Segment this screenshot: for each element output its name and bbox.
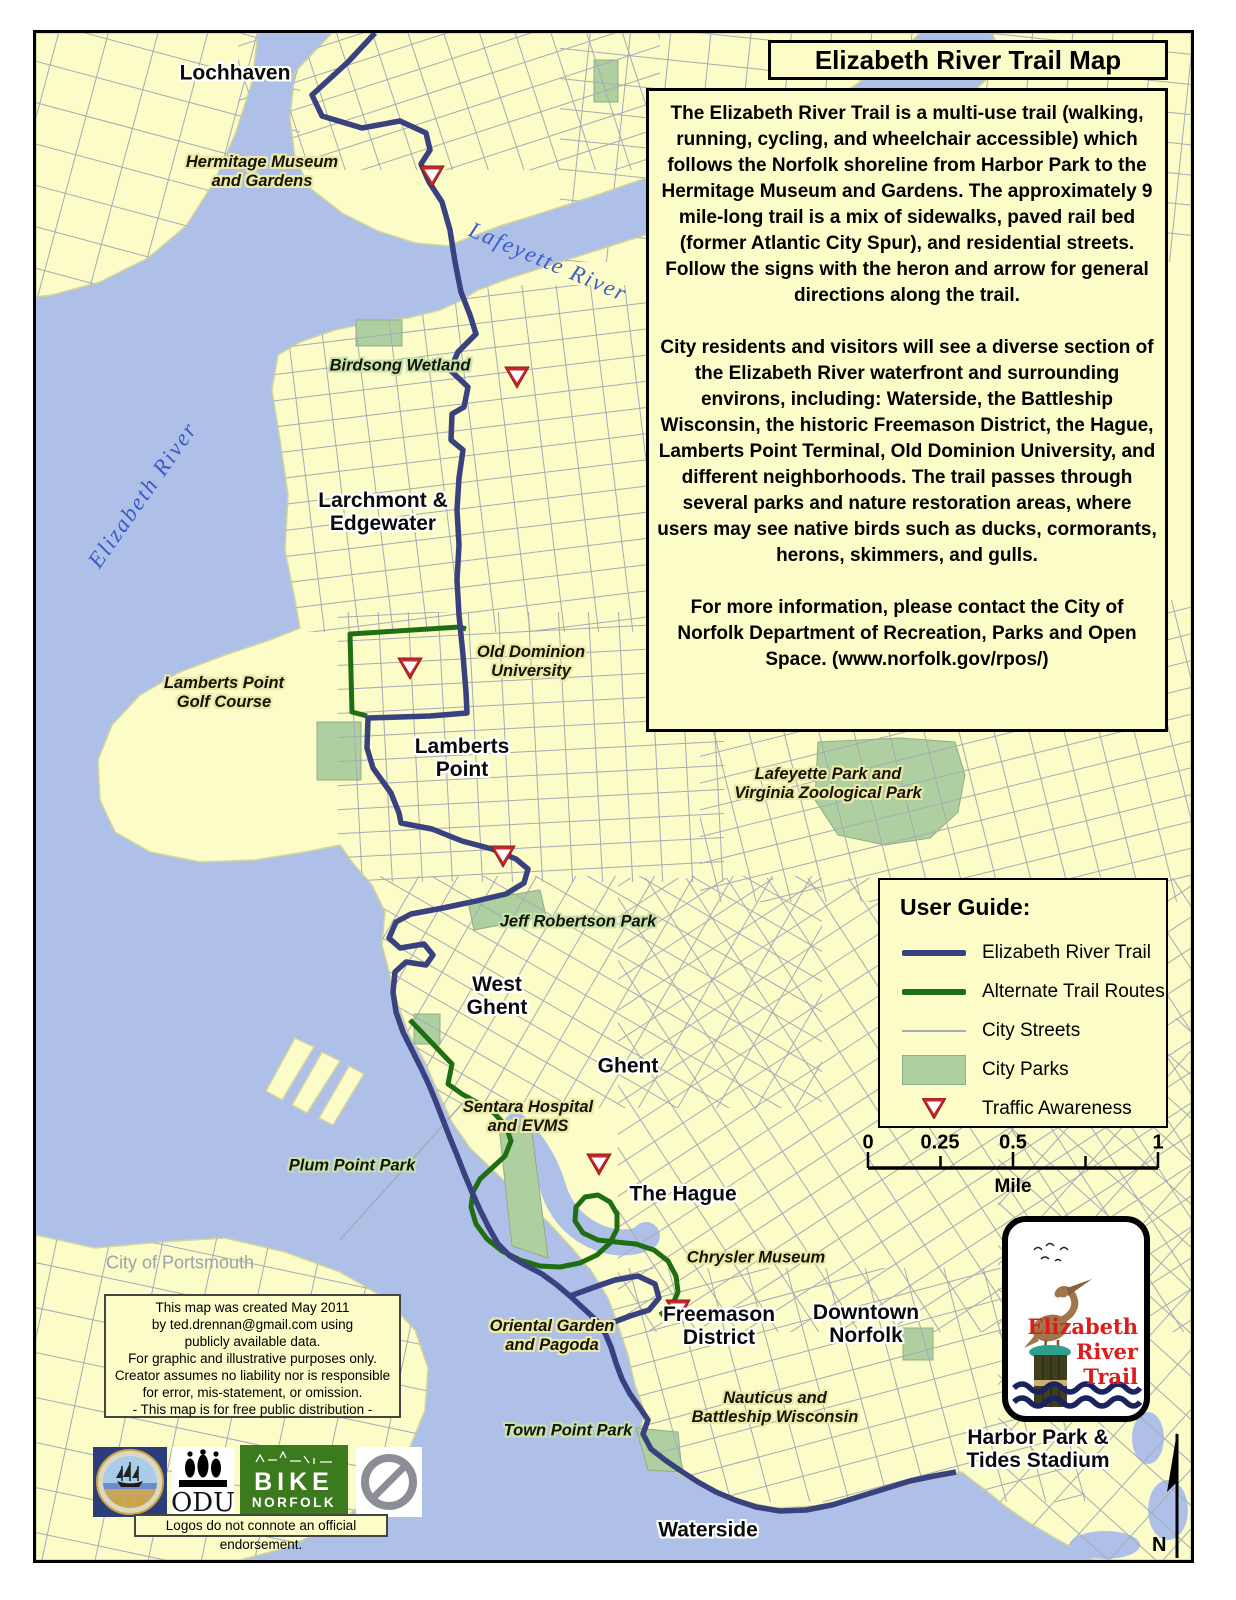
map-label-lafeyette-park-and-virginia-zoological-park: Lafeyette Park and Virginia Zoological P… xyxy=(734,765,921,803)
credits-line-1: This map was created May 2011 xyxy=(106,1299,399,1316)
park-birdsong xyxy=(356,320,402,346)
map-label-lamberts-point-golf-course: Lamberts Point Golf Course xyxy=(164,674,284,712)
map-label-west-ghent: West Ghent xyxy=(467,973,528,1019)
legend-row-city-parks: City Parks xyxy=(880,1050,1166,1089)
map-label-hermitage-museum-and-gardens: Hermitage Museum and Gardens xyxy=(186,153,338,191)
map-label-freemason-district: Freemason District xyxy=(663,1303,775,1349)
user-guide-heading: User Guide: xyxy=(900,894,1166,921)
legend-swatch-park-icon xyxy=(902,1055,966,1085)
scale-tick-label-0: 0 xyxy=(862,1132,873,1155)
scale-tick-label-1: 1 xyxy=(1152,1132,1163,1155)
map-label-lamberts-point: Lamberts Point xyxy=(415,735,510,781)
badge-text-line1: Elizabeth xyxy=(1027,1314,1138,1339)
bike-norfolk-logo: BIKE NORFOLK xyxy=(240,1445,348,1523)
map-title: Elizabeth River Trail Map xyxy=(768,40,1168,80)
map-label-lochhaven: Lochhaven xyxy=(180,62,291,85)
map-label-jeff-robertson-park: Jeff Robertson Park xyxy=(500,913,657,932)
legend-label-elizabeth-river-trail: Elizabeth River Trail xyxy=(982,942,1151,964)
legend-label-alternate-trail-routes: Alternate Trail Routes xyxy=(982,981,1165,1003)
map-label-harbor-park-tides-stadium: Harbor Park & Tides Stadium xyxy=(966,1426,1109,1472)
credits-line-5: Creator assumes no liability nor is resp… xyxy=(106,1367,399,1384)
map-label-sentara-hospital-and-evms: Sentara Hospital and EVMS xyxy=(463,1098,593,1136)
map-label-larchmont-edgewater: Larchmont & Edgewater xyxy=(318,489,448,535)
odu-text: ODU xyxy=(172,1488,234,1517)
bike-text: BIKE xyxy=(254,1468,334,1496)
user-guide-legend: User Guide: Elizabeth River TrailAlterna… xyxy=(878,878,1168,1128)
map-label-oriental-garden-and-pagoda: Oriental Garden and Pagoda xyxy=(490,1317,615,1355)
credits-box: This map was created May 2011by ted.dren… xyxy=(104,1294,401,1418)
legend-swatch-traffic-icon xyxy=(902,1098,966,1119)
heron-logo-icon: Elizabeth River Trail xyxy=(1008,1222,1144,1416)
birds-icon xyxy=(1034,1244,1068,1262)
map-label-downtown-norfolk: Downtown Norfolk xyxy=(813,1301,919,1347)
map-label-ghent: Ghent xyxy=(598,1055,659,1078)
credits-line-7: - This map is for free public distributi… xyxy=(106,1401,399,1418)
map-label-plum-point-park: Plum Point Park xyxy=(289,1157,416,1176)
legend-label-city-parks: City Parks xyxy=(982,1059,1069,1081)
logo-disclaimer: Logos do not connote an official endorse… xyxy=(134,1514,388,1537)
map-label-chrysler-museum: Chrysler Museum xyxy=(687,1249,825,1268)
norfolk-text: NORFOLK xyxy=(252,1495,336,1510)
credits-line-6: for error, mis-statement, or omission. xyxy=(106,1384,399,1401)
map-page: Elizabeth River Trail Map The Elizabeth … xyxy=(0,0,1236,1600)
description-paragraph-3: For more information, please contact the… xyxy=(657,595,1157,673)
legend-swatch-street-icon xyxy=(902,1030,966,1032)
credits-line-3: publicly available data. xyxy=(106,1333,399,1350)
map-label-waterside: Waterside xyxy=(658,1519,758,1542)
legend-label-traffic-awareness: Traffic Awareness xyxy=(982,1098,1132,1120)
credits-line-2: by ted.drennan@gmail.com using xyxy=(106,1316,399,1333)
map-label-the-hague: The Hague xyxy=(629,1183,736,1206)
trail-logo-badge: Elizabeth River Trail xyxy=(1002,1216,1150,1422)
legend-label-city-streets: City Streets xyxy=(982,1020,1080,1042)
map-label-town-point-park: Town Point Park xyxy=(504,1422,633,1441)
description-paragraph-2: City residents and visitors will see a d… xyxy=(657,335,1157,569)
scale-tick-label-0.5: 0.5 xyxy=(999,1132,1027,1155)
odu-logo: ODU xyxy=(172,1447,234,1522)
map-label-city-of-portsmouth: City of Portsmouth xyxy=(106,1253,254,1274)
credits-line-4: For graphic and illustrative purposes on… xyxy=(106,1350,399,1367)
map-description: The Elizabeth River Trail is a multi-use… xyxy=(646,88,1168,732)
legend-row-alternate-trail-routes: Alternate Trail Routes xyxy=(880,972,1166,1011)
map-label-birdsong-wetland: Birdsong Wetland xyxy=(330,357,471,376)
badge-text-line3: Trail xyxy=(1083,1364,1138,1389)
legend-row-elizabeth-river-trail: Elizabeth River Trail xyxy=(880,933,1166,972)
legend-swatch-trail-icon xyxy=(902,950,966,956)
user-guide-rows: Elizabeth River TrailAlternate Trail Rou… xyxy=(880,933,1166,1128)
norfolk-seal-logo xyxy=(93,1447,167,1522)
description-paragraph-1: The Elizabeth River Trail is a multi-use… xyxy=(657,101,1157,309)
map-label-old-dominion-university: Old Dominion University xyxy=(477,643,585,681)
scale-tick-label-0.25: 0.25 xyxy=(921,1132,960,1155)
legend-row-city-streets: City Streets xyxy=(880,1011,1166,1050)
scale-unit-label: Mile xyxy=(995,1176,1032,1198)
north-arrow-label: N xyxy=(1152,1534,1166,1557)
legend-row-traffic-awareness: Traffic Awareness xyxy=(880,1089,1166,1128)
badge-text-line2: River xyxy=(1076,1339,1139,1364)
legend-swatch-alternate-icon xyxy=(902,989,966,995)
no-copyright-logo xyxy=(356,1447,422,1522)
map-label-nauticus-and-battleship-wisconsin: Nauticus and Battleship Wisconsin xyxy=(692,1389,859,1427)
